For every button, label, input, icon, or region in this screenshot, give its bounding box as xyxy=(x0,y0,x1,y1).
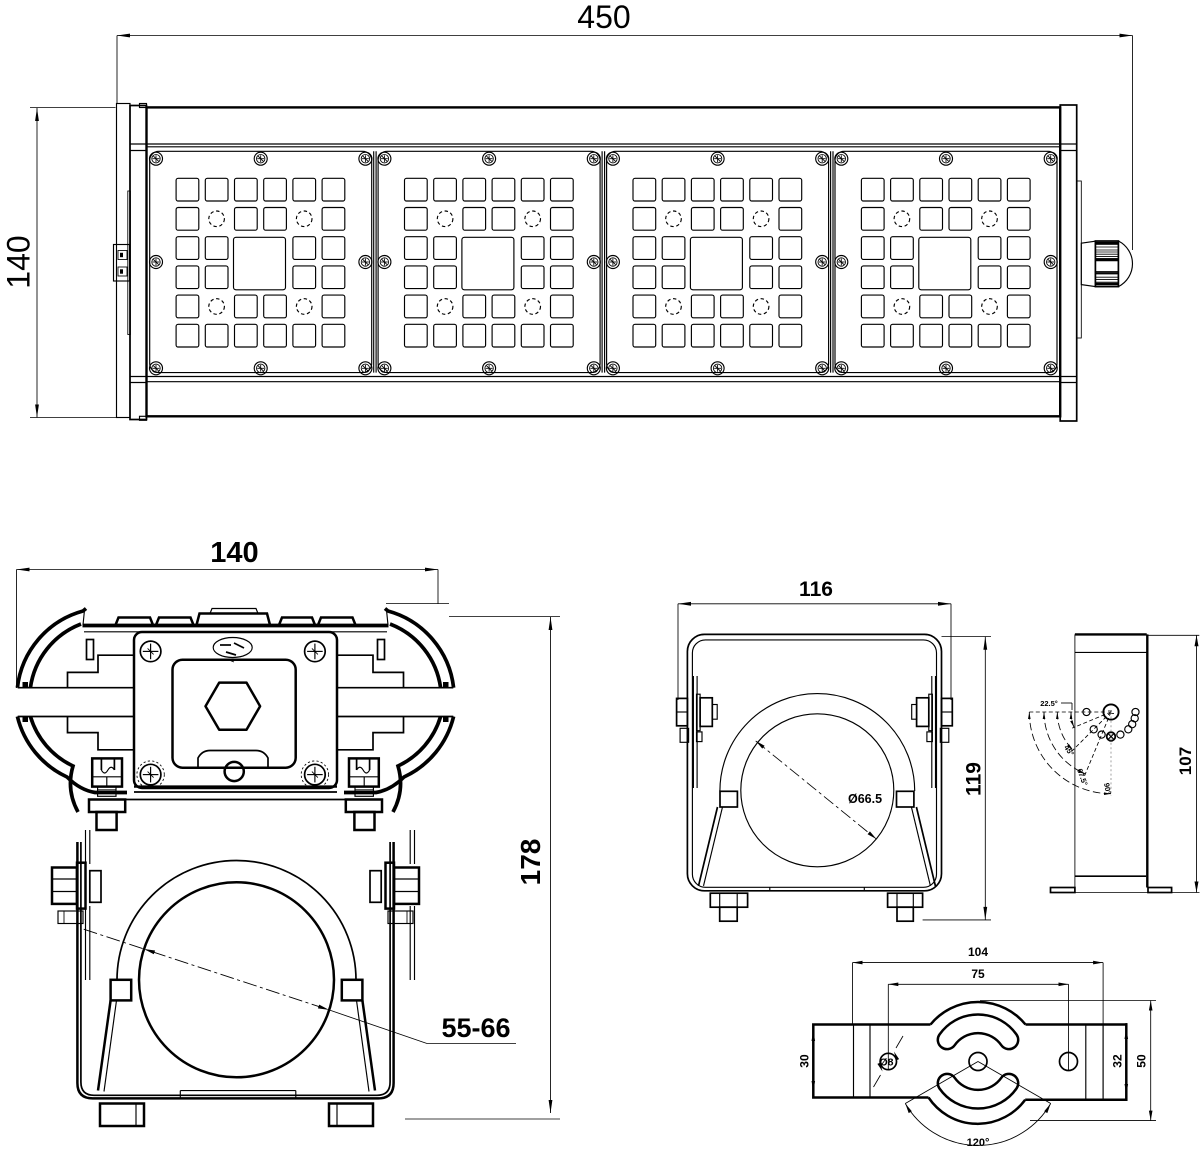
svg-text:32: 32 xyxy=(1111,1054,1125,1068)
svg-text:50: 50 xyxy=(1135,1054,1149,1068)
svg-text:107: 107 xyxy=(1176,747,1195,775)
svg-text:450: 450 xyxy=(577,0,630,35)
svg-text:120°: 120° xyxy=(967,1137,990,1149)
svg-text:75: 75 xyxy=(971,967,985,981)
svg-text:55-66: 55-66 xyxy=(441,1013,510,1043)
svg-text:140: 140 xyxy=(210,537,258,569)
svg-text:119: 119 xyxy=(963,762,986,796)
svg-text:178: 178 xyxy=(515,839,546,886)
svg-text:140: 140 xyxy=(1,235,37,288)
svg-text:30: 30 xyxy=(798,1054,812,1068)
svg-text:22.5°: 22.5° xyxy=(1040,699,1058,708)
svg-text:104: 104 xyxy=(968,945,988,959)
svg-text:Ø8: Ø8 xyxy=(879,1057,893,1069)
svg-text:Ø66.5: Ø66.5 xyxy=(848,792,882,806)
svg-text:116: 116 xyxy=(799,578,833,601)
